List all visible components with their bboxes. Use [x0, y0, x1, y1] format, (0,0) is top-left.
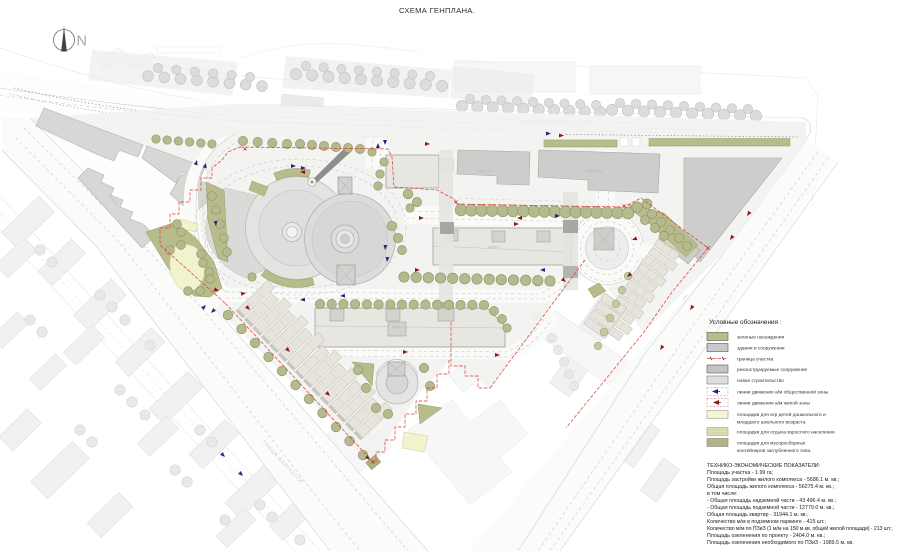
svg-text:площадки для отдыха взрослого: площадки для отдыха взрослого населения: [737, 431, 835, 436]
svg-text:новое строительство: новое строительство: [737, 379, 784, 384]
svg-text:линии движения а/м общественно: линии движения а/м общественной зоны: [737, 389, 829, 396]
svg-text:Количество м/м в подземном пар: Количество м/м в подземном паркинге - 41…: [707, 519, 826, 525]
svg-text:Общая площадь квартир - 31944.: Общая площадь квартир - 31944.1 м. кв.;: [707, 512, 809, 518]
svg-text:в том числе:: в том числе:: [707, 491, 738, 497]
svg-text:площадки для мусоросборных: площадки для мусоросборных: [737, 441, 806, 447]
svg-text:граница участка: граница участка: [737, 358, 774, 363]
svg-text:реконструируемые сооружения: реконструируемые сооружения: [737, 368, 808, 373]
svg-text:литер общ.: литер общ.: [586, 169, 603, 173]
svg-text:литер А: литер А: [478, 169, 490, 173]
svg-text:младшего школьного возраста: младшего школьного возраста: [737, 421, 806, 426]
svg-text:здания и сооружения: здания и сооружения: [737, 347, 785, 352]
svg-text:Условные обозначения :: Условные обозначения :: [709, 318, 782, 326]
svg-text:N: N: [77, 34, 87, 50]
svg-text:зеленые насаждения: зеленые насаждения: [737, 336, 785, 341]
svg-text:линии движения а/м жилой зоны: линии движения а/м жилой зоны: [737, 400, 810, 407]
svg-text:- Общая площадь подземной част: - Общая площадь подземной части - 12779.…: [707, 504, 834, 511]
svg-text:корпус 2: корпус 2: [488, 245, 501, 249]
svg-text:Общая площадь жилого комплекса: Общая площадь жилого комплекса - 56275.4…: [707, 484, 834, 490]
svg-text:Площадь участка - 1.99 га;: Площадь участка - 1.99 га;: [707, 470, 773, 476]
svg-text:Количество м/м по ПЗиЗ (1 м/м: Количество м/м по ПЗиЗ (1 м/м на 150 м.к…: [707, 525, 892, 532]
svg-text:площадки для игр детей дошколь: площадки для игр детей дошкольного и: [737, 411, 826, 418]
svg-text:Площадь озеленения необходимог: Площадь озеленения необходимого по ПЗиЗ …: [707, 540, 854, 546]
svg-text:корпус 3: корпус 3: [392, 325, 405, 329]
svg-text:Площадь озеленения по проекту: Площадь озеленения по проекту - 2404.0 м…: [707, 533, 825, 539]
svg-text:СХЕМА ГЕНПЛАНА.: СХЕМА ГЕНПЛАНА.: [399, 6, 475, 15]
svg-text:ТЕХНИКО-ЭКОНОМИЧЕСКИЕ ПОКАЗАТЕ: ТЕХНИКО-ЭКОНОМИЧЕСКИЕ ПОКАЗАТЕЛИ:: [707, 463, 820, 469]
svg-text:- Общая площадь надземной част: - Общая площадь надземной части - 43 496…: [707, 497, 836, 504]
svg-text:контейнеров заглубленного типа: контейнеров заглубленного типа.: [737, 447, 811, 454]
svg-text:Площадь застройки жилого компл: Площадь застройки жилого комплекса - 568…: [707, 476, 839, 483]
